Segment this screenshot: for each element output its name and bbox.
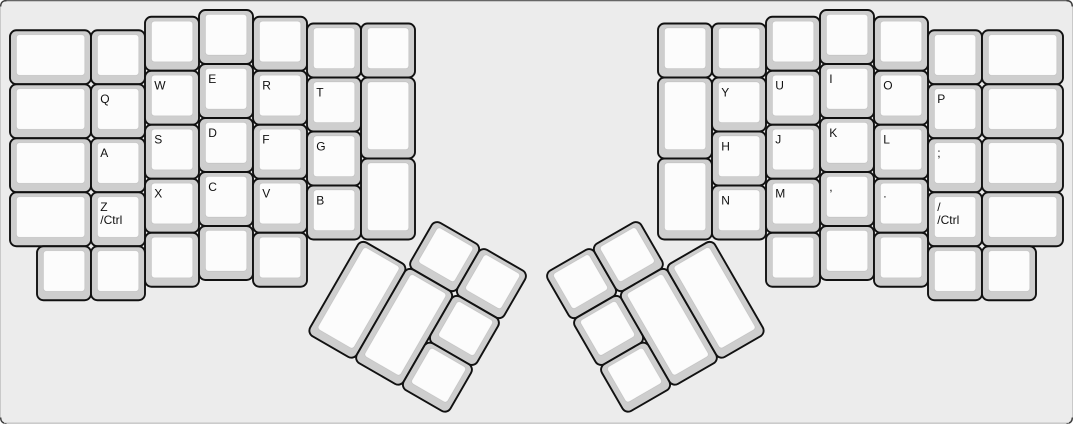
svg-text:W: W [154, 79, 166, 93]
svg-text:/Ctrl: /Ctrl [937, 213, 959, 227]
svg-text:T: T [316, 85, 324, 99]
svg-text:E: E [208, 72, 216, 86]
svg-text:C: C [208, 180, 217, 194]
svg-text:Q: Q [100, 92, 109, 106]
svg-text:V: V [262, 187, 270, 201]
svg-text:A: A [100, 146, 108, 160]
svg-text:U: U [775, 79, 784, 93]
svg-text:P: P [937, 92, 945, 106]
svg-text:O: O [883, 79, 892, 93]
svg-text:M: M [775, 187, 785, 201]
svg-text:R: R [262, 79, 271, 93]
svg-text:S: S [154, 133, 162, 147]
svg-text:H: H [721, 139, 730, 153]
svg-text:J: J [775, 133, 781, 147]
svg-text:Y: Y [721, 85, 729, 99]
svg-text:Z: Z [100, 200, 107, 214]
svg-text:X: X [154, 187, 162, 201]
svg-text:B: B [316, 193, 324, 207]
svg-text:.: . [883, 187, 886, 201]
svg-text:I: I [829, 72, 832, 86]
svg-text:/Ctrl: /Ctrl [100, 213, 122, 227]
svg-text:D: D [208, 126, 217, 140]
svg-text:L: L [883, 133, 890, 147]
svg-text:,: , [829, 180, 832, 194]
svg-text:F: F [262, 133, 269, 147]
svg-text:N: N [721, 193, 730, 207]
svg-text:;: ; [937, 146, 940, 160]
svg-text:G: G [316, 139, 325, 153]
svg-text:K: K [829, 126, 837, 140]
